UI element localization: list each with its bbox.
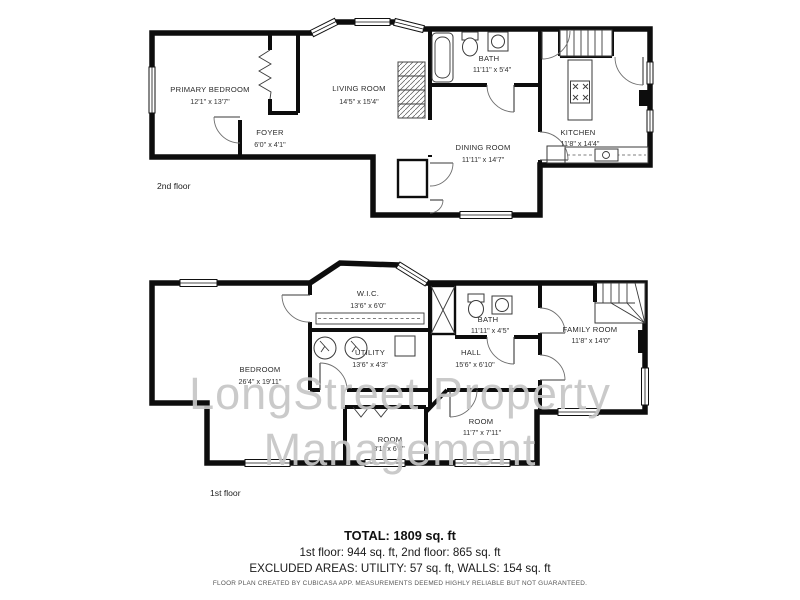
room-label: BATH: [479, 54, 500, 63]
chimney-block: [639, 90, 651, 106]
room-label: UTILITY: [355, 348, 385, 357]
room-label: ROOM: [469, 417, 494, 426]
bathtub-icon: [432, 33, 453, 82]
room-dims: 15'6" x 6'10": [455, 360, 495, 369]
room-dims: 26'4" x 19'11": [239, 377, 282, 386]
summary-block: TOTAL: 1809 sq. ft 1st floor: 944 sq. ft…: [0, 528, 800, 587]
room-dims: 11'11" x 4'5": [471, 326, 510, 335]
floor-plan-2nd-floor: PRIMARY BEDROOM 12'1" x 13'7" LIVING ROO…: [140, 10, 680, 240]
room-label: BEDROOM: [240, 365, 281, 374]
room-label: LIVING ROOM: [332, 84, 385, 93]
room-label: BATH: [478, 315, 499, 324]
room-label: HALL: [461, 348, 481, 357]
floor2-label: 2nd floor: [157, 181, 191, 191]
stairs-icon: [595, 283, 645, 323]
floor-areas: 1st floor: 944 sq. ft, 2nd floor: 865 sq…: [0, 546, 800, 559]
disclaimer: FLOOR PLAN CREATED BY CUBICASA APP. MEAS…: [0, 580, 800, 587]
room-label: KITCHEN: [560, 128, 595, 137]
room-dims: 11'8" x 14'0": [572, 336, 611, 345]
floor-plan-1st-floor: W.I.C. 13'6" x 6'0" UTILITY 13'6" x 4'3"…: [140, 250, 680, 500]
room-dims: 11'7" x 7'11": [463, 428, 502, 437]
room-dims: 14'5" x 15'4": [339, 97, 379, 106]
shower-icon: [431, 286, 455, 334]
room-label: W.I.C.: [357, 289, 379, 298]
room-dims: 13'6" x 6'0": [350, 301, 386, 310]
room-label: FOYER: [256, 128, 284, 137]
stove-icon: [568, 60, 592, 120]
chimney-block: [638, 330, 647, 353]
room-label: PRIMARY BEDROOM: [170, 85, 249, 94]
room-dims: 11'11" x 5'4": [473, 65, 512, 74]
sink-icon: [488, 32, 508, 51]
room-label: DINING ROOM: [455, 143, 510, 152]
room-label: ROOM: [378, 435, 403, 444]
toilet-icon: [468, 294, 484, 318]
toilet-icon: [462, 32, 478, 56]
excluded-areas: EXCLUDED AREAS: UTILITY: 57 sq. ft, WALL…: [0, 562, 800, 575]
room-label: FAMILY ROOM: [563, 325, 618, 334]
room-dims: 12'1" x 13'7": [190, 97, 230, 106]
room-dims: 13'6" x 4'3": [352, 360, 388, 369]
washer-icon: [314, 337, 336, 359]
total-area: TOTAL: 1809 sq. ft: [0, 528, 800, 543]
water-heater-icon: [395, 336, 415, 356]
room-dims: 11'11" x 14'7": [462, 155, 505, 164]
floor1-outline: [152, 263, 645, 463]
stairs-down-hatch: [398, 62, 425, 118]
floor1-label: 1st floor: [210, 488, 241, 498]
room-dims: 8'1" x 6'4": [373, 444, 405, 453]
room-dims: 11'8" x 14'4": [561, 139, 600, 148]
sink-icon: [492, 296, 512, 314]
room-dims: 6'0" x 4'1": [254, 140, 286, 149]
